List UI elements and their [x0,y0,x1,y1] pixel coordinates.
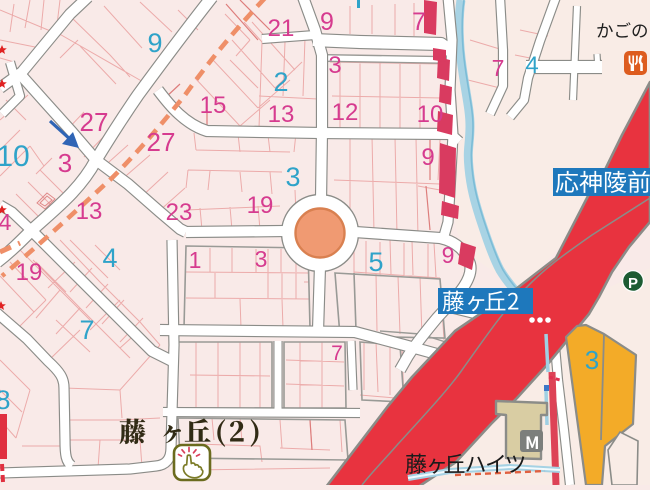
svg-text:12: 12 [332,99,359,126]
svg-text:27: 27 [80,107,109,137]
svg-text:3: 3 [255,246,268,272]
svg-text:5: 5 [368,247,383,277]
svg-text:9: 9 [442,242,455,268]
svg-text:7: 7 [412,8,426,36]
svg-text:7: 7 [331,342,343,365]
svg-text:7: 7 [492,55,505,81]
svg-text:7: 7 [79,315,94,345]
svg-text:4: 4 [0,209,12,235]
svg-text:9: 9 [147,28,162,58]
svg-text:19: 19 [247,192,274,219]
svg-text:1: 1 [189,247,202,273]
svg-text:3: 3 [58,148,72,178]
svg-text:4: 4 [102,243,117,273]
svg-text:15: 15 [200,92,227,119]
svg-text:21: 21 [268,15,295,42]
svg-text:10: 10 [0,140,30,173]
svg-text:9: 9 [421,144,434,171]
svg-text:9: 9 [320,8,334,36]
svg-text:3: 3 [285,162,300,192]
svg-text:3: 3 [328,52,341,79]
svg-text:3: 3 [585,345,599,375]
svg-text:13: 13 [76,198,103,225]
svg-text:8: 8 [0,385,11,415]
svg-text:4: 4 [525,52,538,79]
svg-text:P: P [628,275,638,292]
svg-text:27: 27 [147,127,176,157]
svg-text:19: 19 [16,259,43,286]
svg-text:2: 2 [273,67,288,97]
svg-text:13: 13 [268,101,295,128]
svg-text:23: 23 [166,199,193,226]
svg-text:10: 10 [417,101,444,128]
